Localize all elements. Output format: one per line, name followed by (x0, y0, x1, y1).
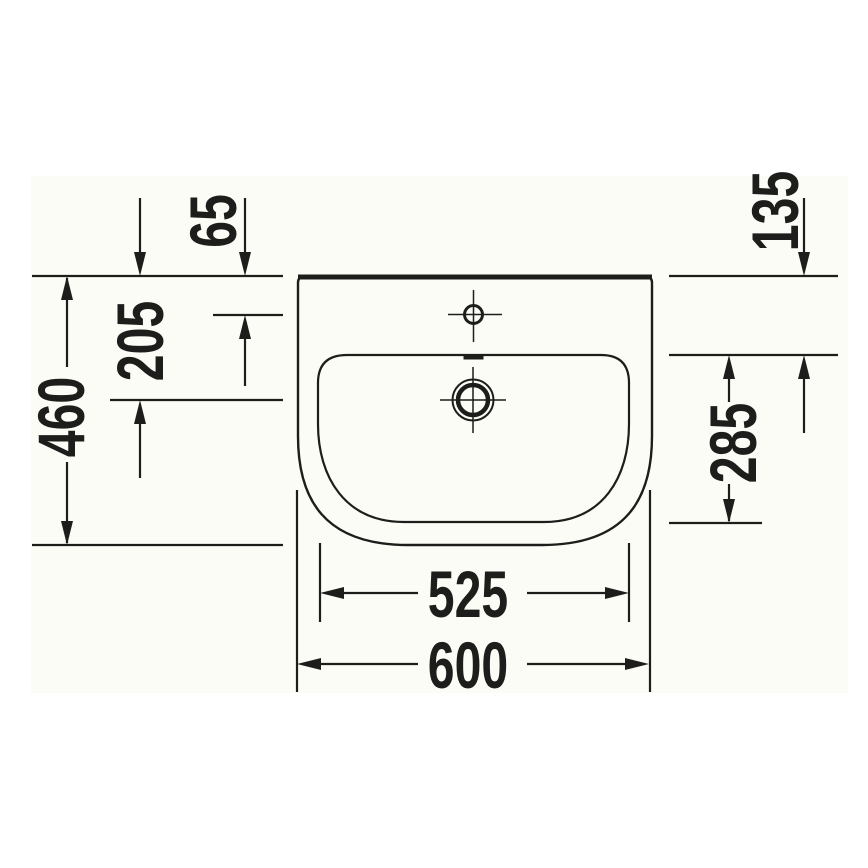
technical-drawing-page: 460 205 65 135 285 525 600 (0, 0, 868, 868)
arrow-up (61, 276, 73, 300)
arrow-down (134, 252, 146, 276)
arrow-left (320, 587, 344, 599)
arrow-down (61, 521, 73, 545)
tap-hole (448, 290, 502, 342)
arrow-right (625, 658, 649, 670)
dim-label-overall-depth: 460 (28, 377, 94, 457)
dim-label-tap-offset: 65 (180, 194, 246, 248)
arrow-down (723, 499, 735, 523)
arrow-up (798, 355, 810, 379)
arrow-up (134, 400, 146, 424)
arrow-left (297, 658, 321, 670)
arrow-down (239, 252, 251, 276)
arrow-right (605, 587, 629, 599)
dim-label-rim-offset: 135 (742, 171, 808, 251)
dim-label-drain-offset: 205 (107, 301, 173, 381)
right-extension-lines (669, 276, 838, 523)
dim-label-overall-width: 600 (428, 632, 508, 698)
dim-label-bowl-depth: 285 (700, 403, 766, 483)
arrow-up (723, 355, 735, 379)
drain-hole (440, 367, 506, 433)
arrow-down (798, 252, 810, 276)
arrow-up (239, 315, 251, 339)
dim-label-bowl-width: 525 (428, 561, 508, 627)
